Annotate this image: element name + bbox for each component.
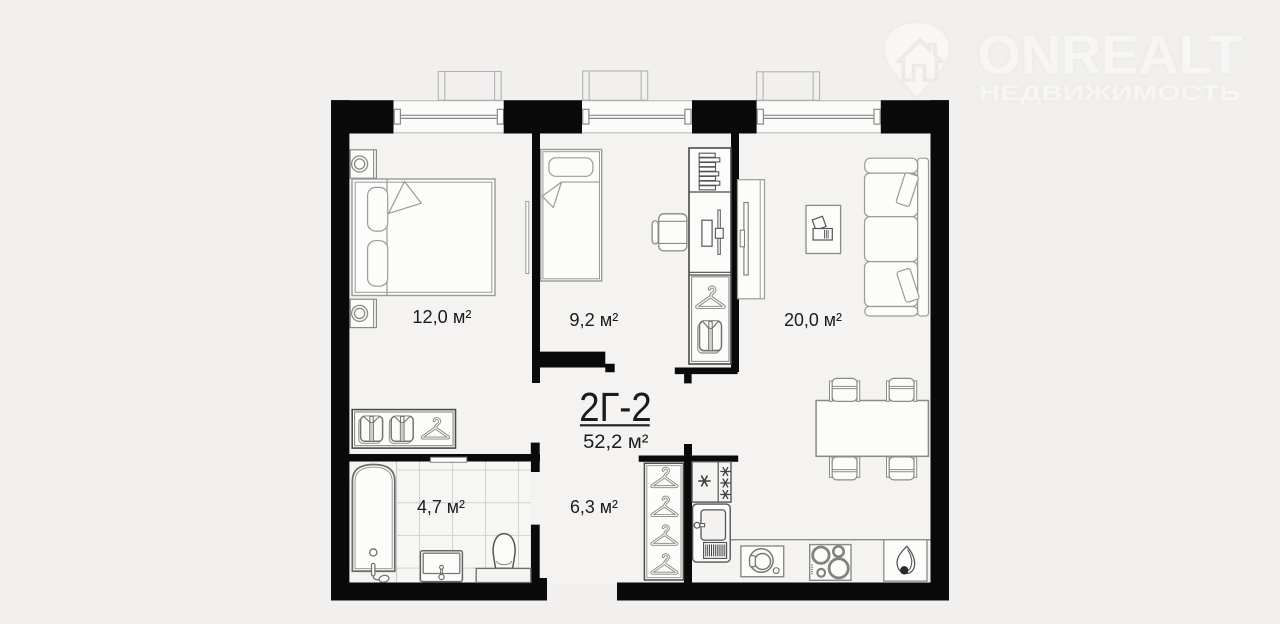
svg-text:20,0 м²: 20,0 м² xyxy=(784,309,842,330)
svg-text:6,3 м²: 6,3 м² xyxy=(570,496,618,517)
svg-text:9,2 м²: 9,2 м² xyxy=(569,309,618,330)
svg-text:12,0 м²: 12,0 м² xyxy=(412,306,471,327)
svg-text:52,2 м²: 52,2 м² xyxy=(583,431,649,453)
svg-text:НЕДВИЖИМОСТЬ: НЕДВИЖИМОСТЬ xyxy=(979,82,1241,105)
svg-text:ONREALT: ONREALT xyxy=(978,24,1243,86)
svg-text:2Г-2: 2Г-2 xyxy=(579,384,652,430)
svg-text:4,7 м²: 4,7 м² xyxy=(417,496,465,517)
